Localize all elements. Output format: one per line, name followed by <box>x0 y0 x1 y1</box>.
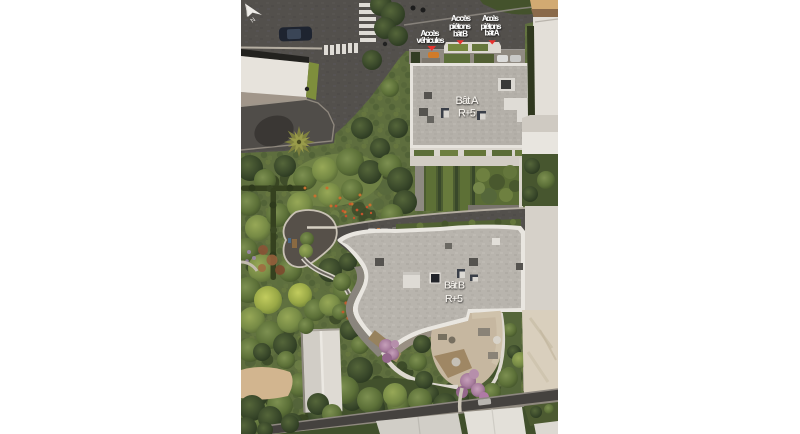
svg-text:véhicules: véhicules <box>417 36 446 45</box>
svg-text:Bât B: Bât B <box>444 280 465 292</box>
svg-text:R+5: R+5 <box>458 108 476 120</box>
svg-text:Bât A: Bât A <box>456 95 480 107</box>
svg-text:bât B: bât B <box>453 30 468 39</box>
svg-text:R+5: R+5 <box>445 293 463 305</box>
svg-text:bât A: bât A <box>485 29 500 38</box>
